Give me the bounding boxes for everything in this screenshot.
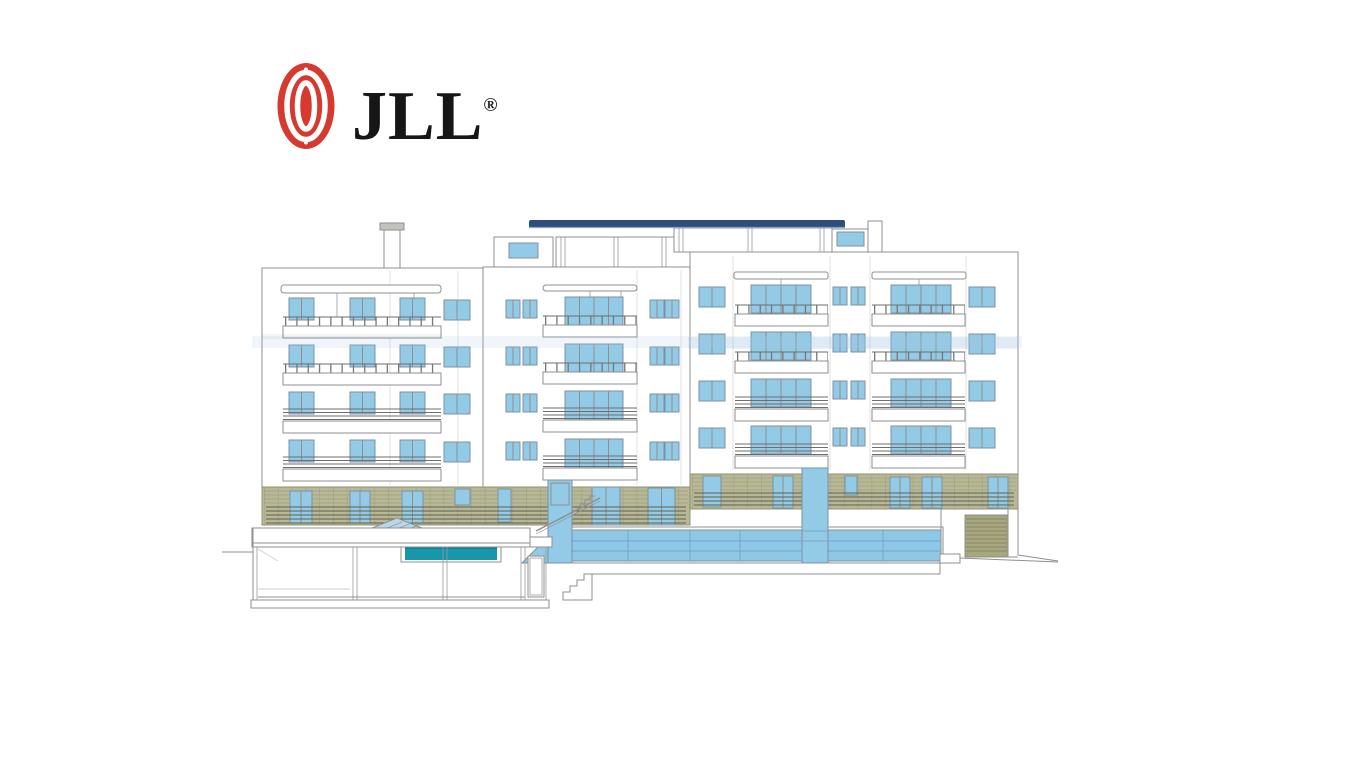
garage-door	[965, 515, 1008, 557]
elevation-drawing	[0, 0, 1352, 767]
roof-canopy	[529, 220, 845, 228]
ground-cladding-right	[690, 474, 1018, 509]
page: JLL®	[0, 0, 1352, 767]
chimney	[380, 223, 404, 268]
exterior-stairs	[563, 574, 592, 600]
pool-house-section	[222, 528, 552, 608]
glass-facade	[566, 527, 943, 563]
ground-cladding-left	[262, 487, 690, 525]
elevator-tower	[802, 468, 828, 563]
penthouse-left	[494, 237, 690, 267]
scan-artifact	[252, 334, 1022, 349]
